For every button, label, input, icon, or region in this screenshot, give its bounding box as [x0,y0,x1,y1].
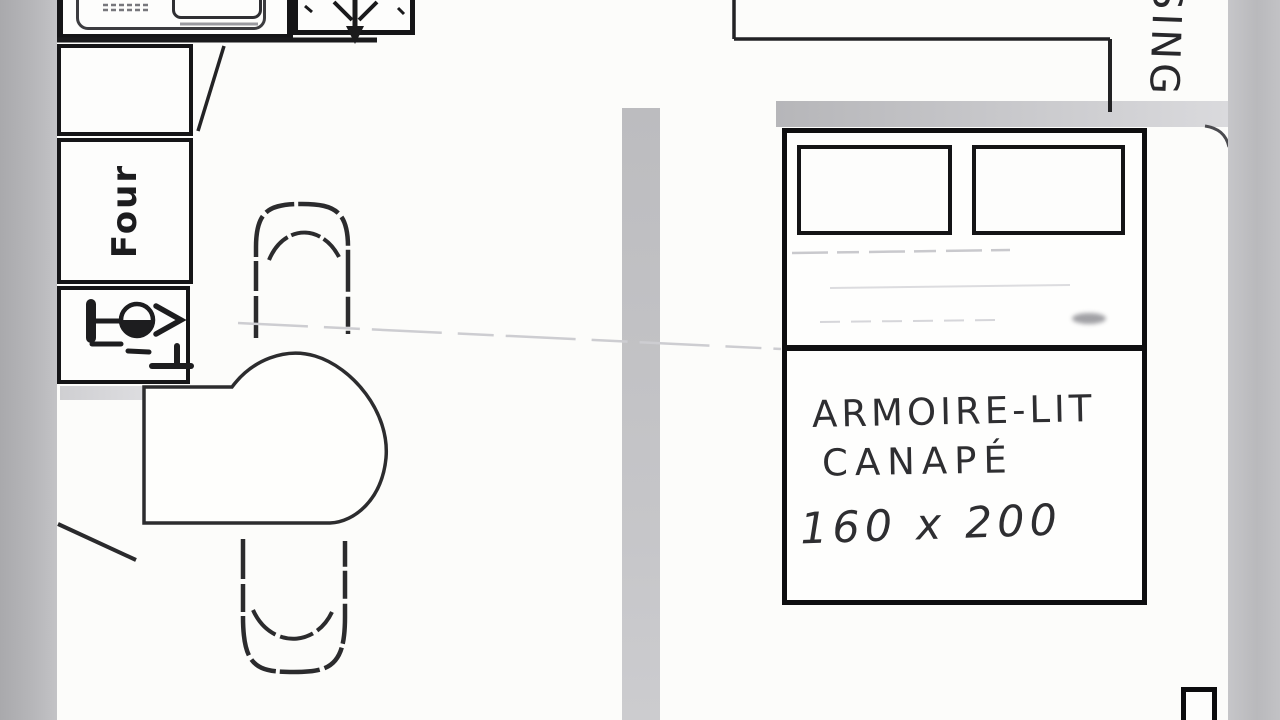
top-room-wall-lines [734,0,1110,112]
bed-crease-lines [792,250,1070,322]
scan-margin-right [1228,0,1280,720]
bed-label-line2: CANAPÉ [822,438,1015,484]
dressing-label-partial: SING [1140,0,1190,99]
extractor-fan-icon [305,0,404,44]
dining-table [144,353,386,523]
bottom-right-fixture [1181,687,1217,720]
chair-bottom [243,539,345,672]
door-swing-line-fridge [198,46,224,131]
bed-dimensions-label: 160 x 200 [799,495,1063,554]
linework-layer [0,0,1280,720]
door-arc-right [1205,126,1229,147]
wall-diagonal-line [58,524,136,560]
floor-plan-scan: Four [0,0,1280,720]
sink-drainer-hatch [103,5,150,10]
bed-label-line1: ARMOIRE-LIT [812,387,1096,436]
chair-top [256,204,348,338]
floor-pencil-line [238,323,781,349]
dishwasher-glass-icon [91,304,191,366]
